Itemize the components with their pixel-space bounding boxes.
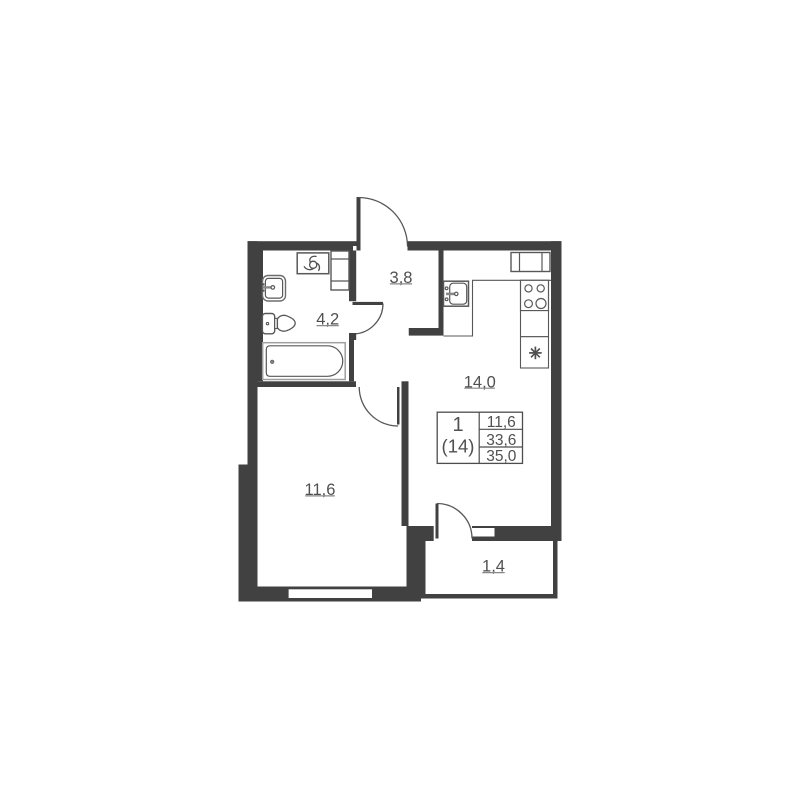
svg-text:11,6: 11,6 [487, 414, 516, 431]
svg-text:(14): (14) [442, 436, 475, 457]
svg-text:35,0: 35,0 [486, 448, 517, 465]
svg-text:1: 1 [452, 414, 463, 436]
svg-text:33,6: 33,6 [486, 432, 516, 449]
